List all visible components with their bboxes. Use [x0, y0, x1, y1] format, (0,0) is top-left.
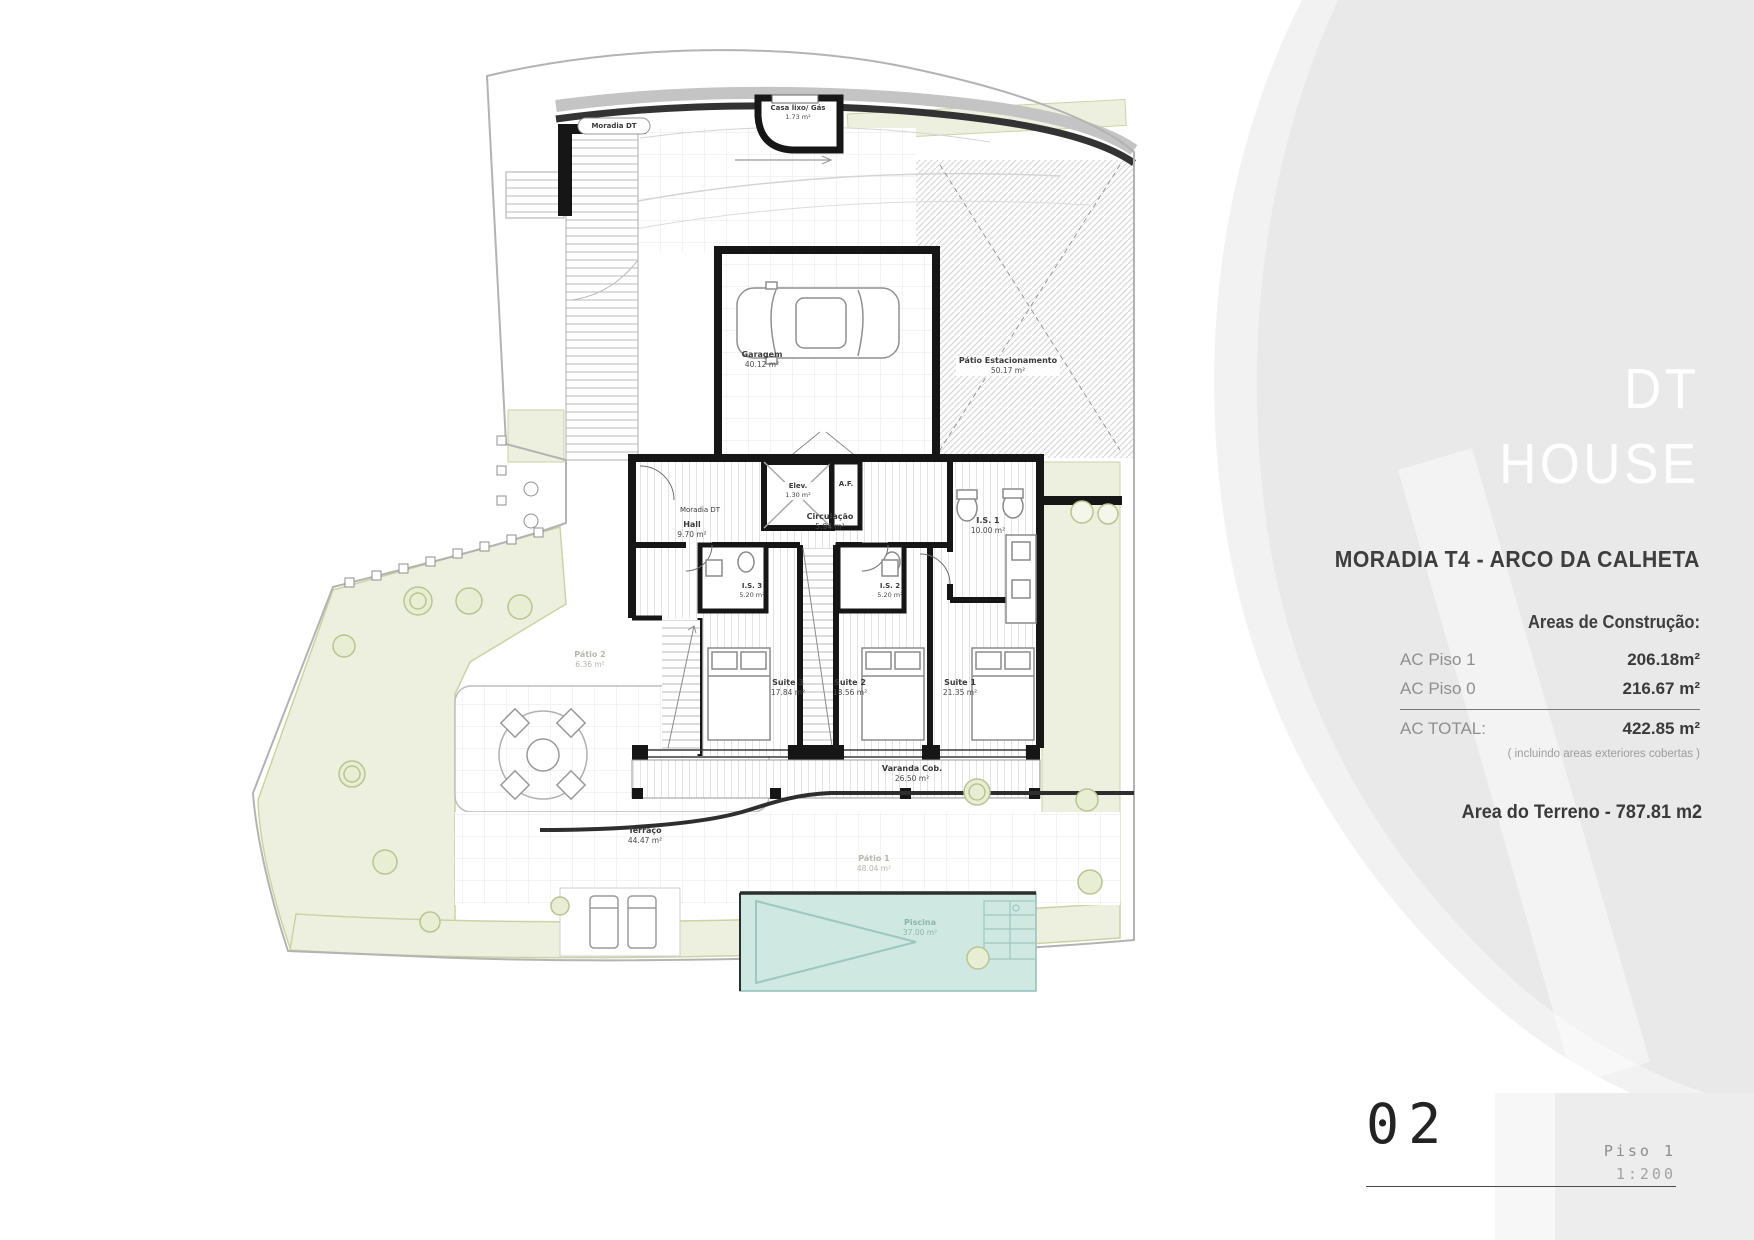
brand-line1: DT — [1624, 357, 1700, 421]
house-name-label: Moradia DT — [680, 506, 720, 515]
scale-label: 1:200 — [1604, 1163, 1676, 1186]
room-label-is3: I.S. 3 5.20 m² — [739, 582, 764, 600]
room-label-garagem: Garagem 40.12 m² — [742, 350, 783, 370]
room-label-terraco: Terraço 44.47 m² — [628, 826, 662, 846]
floor-label: Piso 1 — [1604, 1140, 1676, 1163]
room-label-circulacao: Circulação 5.94 m² — [807, 512, 854, 532]
area-row-piso0: AC Piso 0 216.67 m² — [1400, 679, 1700, 699]
area-row-value: 206.18m² — [1627, 650, 1700, 670]
site-entrance-label: Moradia DT — [591, 122, 636, 131]
total-divider — [1400, 709, 1700, 710]
room-label-af: A.F. — [839, 480, 854, 489]
room-label-casa-lixo: Casa lixo/ Gás 1.73 m² — [771, 104, 826, 122]
lounger-deck — [560, 888, 680, 956]
room-label-elevador: Elev. 1.30 m² — [782, 482, 813, 500]
area-row-label: AC Piso 1 — [1400, 650, 1476, 670]
room-label-is2: I.S. 2 5.20 m² — [877, 582, 902, 600]
brand-line2: HOUSE — [1500, 432, 1700, 496]
terrain-area: Area do Terreno - 787.81 m2 — [1462, 802, 1702, 824]
room-label-varanda: Varanda Cob. 26.50 m² — [882, 764, 942, 784]
brand-title: DT HOUSE — [1500, 352, 1700, 502]
areas-heading: Areas de Construção: — [1528, 612, 1700, 633]
room-label-piscina: Piscina 37.00 m² — [903, 918, 937, 938]
area-row-total: AC TOTAL: 422.85 m² — [1400, 719, 1700, 739]
room-label-suite2: Suite 2 18.56 m² — [833, 678, 867, 698]
drawing-sheet: Moradia DT Casa lixo/ Gás 1.73 m² Garage… — [0, 0, 1754, 1240]
project-title: MORADIA T4 - ARCO DA CALHETA — [1335, 546, 1700, 573]
sheet-number: 02 — [1366, 1092, 1450, 1156]
room-label-is1: I.S. 1 10.00 m² — [971, 516, 1005, 536]
sheet-graphics — [0, 0, 1754, 1240]
room-label-patio-estacionamento: Pátio Estacionamento 50.17 m² — [956, 356, 1060, 376]
floor-scale-block: Piso 1 1:200 — [1604, 1140, 1676, 1187]
area-row-label: AC Piso 0 — [1400, 679, 1476, 699]
room-label-patio1: Pátio 1 48.04 m² — [857, 854, 891, 874]
beds — [708, 648, 1034, 740]
room-label-patio2: Pátio 2 6.36 m² — [574, 650, 605, 670]
room-label-suite1: Suite 1 21.35 m² — [943, 678, 977, 698]
total-note: ( incluindo areas exteriores cobertas ) — [1400, 748, 1700, 760]
area-row-piso1: AC Piso 1 206.18m² — [1400, 650, 1700, 670]
pool — [740, 893, 1036, 991]
room-label-suite3: Suite 3 17.84 m² — [771, 678, 805, 698]
total-label: AC TOTAL: — [1400, 719, 1486, 739]
areas-table: AC Piso 1 206.18m² AC Piso 0 216.67 m² A… — [1400, 650, 1700, 760]
total-value: 422.85 m² — [1623, 719, 1701, 739]
area-row-value: 216.67 m² — [1623, 679, 1701, 699]
room-label-hall: Hall 9.70 m² — [677, 520, 706, 540]
